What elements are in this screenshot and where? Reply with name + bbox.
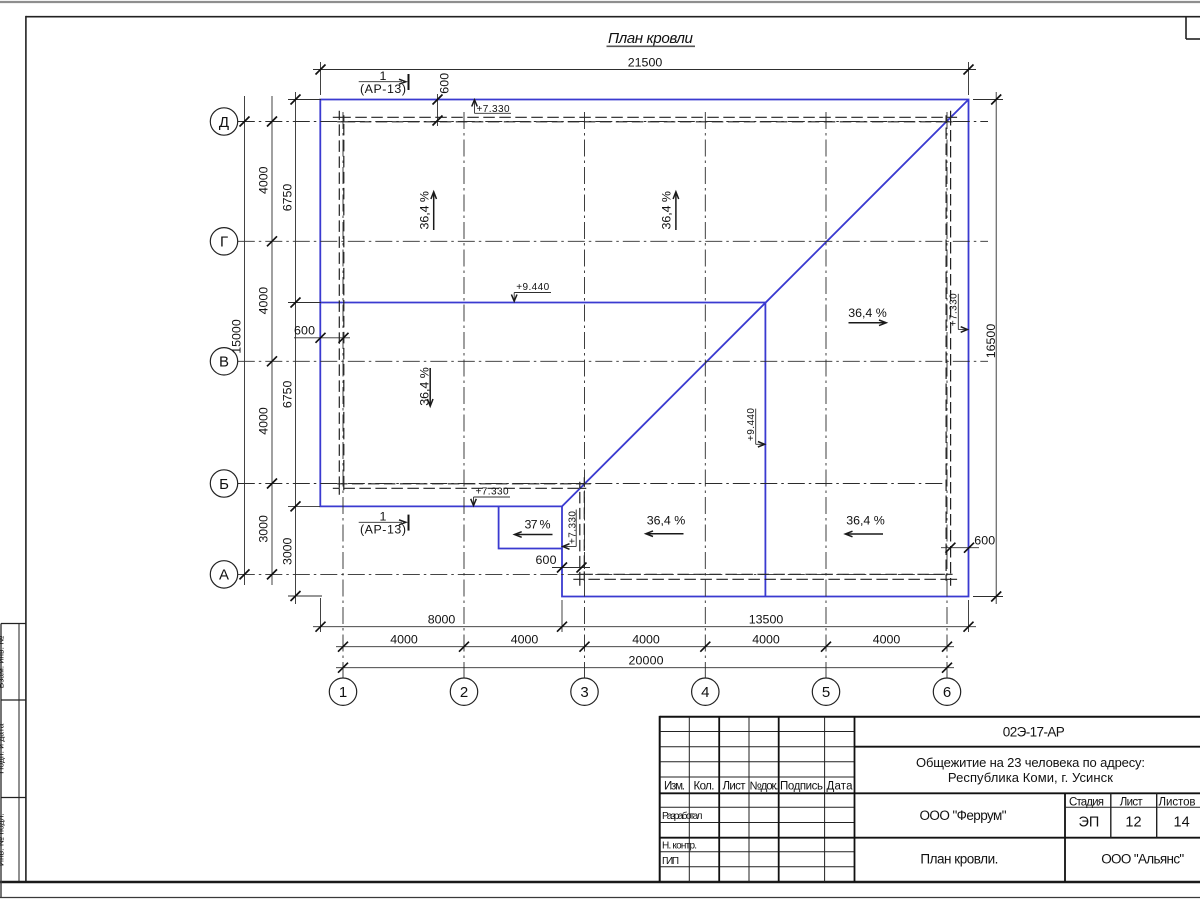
- svg-text:4000: 4000: [632, 632, 660, 646]
- svg-text:14: 14: [1174, 815, 1190, 831]
- svg-text:36,4 %: 36,4 %: [417, 367, 431, 406]
- svg-text:21500: 21500: [628, 55, 663, 69]
- svg-text:6750: 6750: [281, 381, 295, 409]
- svg-text:В: В: [219, 354, 229, 371]
- svg-text:ЭП: ЭП: [1078, 815, 1099, 831]
- svg-text:Лист: Лист: [1120, 796, 1144, 808]
- svg-text:№док.: №док.: [750, 781, 779, 793]
- svg-text:Лист: Лист: [723, 781, 747, 793]
- svg-text:Разработал: Разработал: [662, 810, 703, 822]
- svg-text:13500: 13500: [749, 612, 784, 626]
- svg-text:Подпись: Подпись: [780, 781, 823, 793]
- svg-text:Изм.: Изм.: [664, 781, 685, 793]
- svg-text:36,4 %: 36,4 %: [846, 514, 885, 528]
- svg-text:15000: 15000: [230, 319, 244, 354]
- svg-text:02Э-17-АР: 02Э-17-АР: [1003, 725, 1065, 740]
- svg-text:+7.330: +7.330: [567, 511, 578, 544]
- svg-text:+9.440: +9.440: [516, 282, 549, 293]
- svg-text:План кровли.: План кровли.: [920, 852, 998, 867]
- svg-text:1: 1: [339, 684, 347, 701]
- svg-text:20000: 20000: [629, 654, 664, 668]
- svg-text:(АР-13): (АР-13): [360, 522, 406, 536]
- svg-text:2: 2: [460, 684, 468, 701]
- svg-text:Листов: Листов: [1159, 796, 1196, 808]
- svg-text:4000: 4000: [752, 632, 780, 646]
- svg-text:Д: Д: [219, 114, 229, 131]
- svg-text:8000: 8000: [428, 612, 456, 626]
- svg-text:16500: 16500: [984, 324, 998, 359]
- svg-text:4000: 4000: [873, 632, 901, 646]
- svg-text:Г: Г: [220, 234, 228, 251]
- svg-text:3: 3: [580, 684, 588, 701]
- svg-text:4000: 4000: [257, 166, 271, 194]
- svg-text:Н. контр.: Н. контр.: [662, 841, 697, 852]
- svg-text:ООО "Альянс": ООО "Альянс": [1101, 852, 1184, 867]
- svg-text:+7.330: +7.330: [477, 104, 510, 115]
- svg-text:3000: 3000: [257, 515, 271, 543]
- svg-text:ООО "Феррум": ООО "Феррум": [920, 808, 1007, 823]
- svg-text:Общежитие на 23 человека по ад: Общежитие на 23 человека по адресу:: [916, 755, 1145, 770]
- svg-text:+7.330: +7.330: [949, 293, 960, 326]
- svg-text:Подп. и дата: Подп. и дата: [0, 723, 6, 773]
- svg-text:3000: 3000: [281, 537, 295, 565]
- svg-text:4000: 4000: [257, 407, 271, 435]
- svg-text:600: 600: [974, 534, 995, 548]
- svg-text:600: 600: [437, 73, 451, 94]
- svg-text:(АР-13): (АР-13): [360, 82, 406, 96]
- svg-text:Инв. № подл.: Инв. № подл.: [0, 813, 6, 866]
- svg-text:6: 6: [943, 684, 951, 701]
- svg-text:Дата: Дата: [827, 781, 854, 793]
- svg-text:1: 1: [380, 510, 387, 524]
- svg-text:Б: Б: [219, 476, 229, 493]
- svg-text:+7.330: +7.330: [476, 487, 509, 498]
- svg-text:12: 12: [1125, 815, 1141, 831]
- svg-text:4000: 4000: [257, 287, 271, 315]
- svg-text:4: 4: [701, 684, 709, 701]
- svg-text:600: 600: [294, 323, 315, 337]
- svg-text:Республика Коми, г. Усинск: Республика Коми, г. Усинск: [948, 770, 1113, 785]
- svg-text:5: 5: [822, 684, 830, 701]
- svg-text:4000: 4000: [511, 632, 539, 646]
- svg-text:Взам. инв. №: Взам. инв. №: [0, 636, 6, 689]
- svg-text:Кол.: Кол.: [694, 781, 715, 793]
- svg-text:36,4 %: 36,4 %: [848, 306, 887, 320]
- svg-text:600: 600: [536, 553, 557, 567]
- svg-text:Стадия: Стадия: [1069, 796, 1104, 808]
- svg-text:План кровли: План кровли: [608, 30, 694, 47]
- svg-text:36,4 %: 36,4 %: [417, 191, 431, 230]
- svg-text:36,4 %: 36,4 %: [647, 514, 686, 528]
- svg-text:37 %: 37 %: [525, 518, 551, 532]
- svg-text:4000: 4000: [390, 632, 418, 646]
- svg-text:6750: 6750: [281, 184, 295, 212]
- svg-text:ГИП: ГИП: [662, 856, 679, 867]
- svg-text:36,4 %: 36,4 %: [659, 191, 673, 230]
- svg-text:+9.440: +9.440: [746, 408, 757, 441]
- svg-text:А: А: [219, 567, 229, 584]
